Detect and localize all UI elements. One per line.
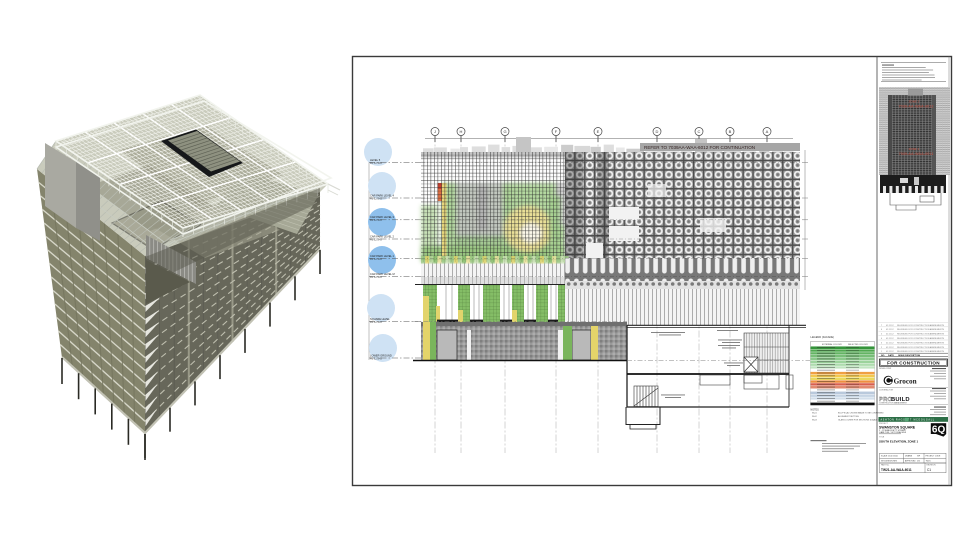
svg-text:RL 12.345: RL 12.345 [370, 237, 382, 241]
svg-text:LEGEND (FACADE): LEGEND (FACADE) [811, 335, 835, 339]
svg-text:Grocon: Grocon [894, 377, 917, 385]
svg-text:D: D [656, 129, 659, 134]
svg-text:DRAWN: DRAWN [905, 454, 913, 457]
svg-text:B: B [729, 129, 732, 134]
svg-text:SWANSTON SQUARE: SWANSTON SQUARE [879, 425, 916, 429]
svg-text:E: E [597, 129, 600, 134]
svg-text:NOTES: NOTES [811, 409, 820, 412]
svg-text:RE-ISSUED FOR CONSTRUCTION AME: RE-ISSUED FOR CONSTRUCTION AMENDMENTS [897, 328, 945, 331]
svg-text:NTS DESIGN REV: NTS DESIGN REV [881, 461, 898, 463]
svg-text:RE-ISSUED FOR CONSTRUCTION AME: RE-ISSUED FOR CONSTRUCTION AMENDMENTS [897, 324, 945, 327]
svg-text:GLASS LOUVRE FOR SECTIONS 10 A: GLASS LOUVRE FOR SECTIONS 10 AALD 3021 [838, 418, 883, 421]
svg-text:TITLE: TITLE [879, 437, 885, 439]
svg-text:DATE: DATE [888, 354, 894, 357]
svg-text:RL 12.345: RL 12.345 [370, 218, 382, 222]
svg-text:02.11.12: 02.11.12 [886, 329, 895, 331]
svg-text:RL 12.345: RL 12.345 [370, 275, 382, 279]
svg-text:REVISION: REVISION [927, 465, 937, 467]
svg-text:ZONE 1: ZONE 1 [909, 147, 920, 151]
svg-text:02.11.12: 02.11.12 [886, 342, 895, 344]
svg-text:RL 12.345: RL 12.345 [370, 257, 382, 261]
svg-text:7039-AA-WAA-6011: 7039-AA-WAA-6011 [899, 152, 934, 156]
svg-text:02.11.12: 02.11.12 [886, 325, 895, 327]
svg-text:CONTRACTOR: CONTRACTOR [879, 389, 894, 392]
svg-text:02.11.12: 02.11.12 [886, 347, 895, 349]
svg-text:J: J [434, 129, 436, 134]
svg-text:RE-ISSUED FOR CONSTRUCTION AME: RE-ISSUED FOR CONSTRUCTION AMENDMENTS [897, 346, 945, 349]
svg-text:RE-ISSUED FOR CONSTRUCTION AME: RE-ISSUED FOR CONSTRUCTION AMENDMENTS [897, 333, 945, 336]
svg-text:TW21: TW21 [926, 461, 931, 463]
svg-text:PROJECT CODE: PROJECT CODE [926, 455, 942, 457]
svg-text:C1: C1 [927, 468, 931, 472]
svg-text:CONSTRUCTION MANAGEMENT: CONSTRUCTION MANAGEMENT [879, 402, 908, 405]
svg-text:PART No.: PART No. [881, 464, 890, 467]
svg-text:EXTERNAL COLOUR: EXTERNAL COLOUR [822, 343, 842, 346]
svg-text:SELECTED COLOUR: SELECTED COLOUR [848, 344, 868, 346]
svg-text:SOUTH ELEVATION, ZONE 1: SOUTH ELEVATION, ZONE 1 [879, 439, 918, 443]
svg-text:02.11.12: 02.11.12 [886, 338, 895, 340]
svg-text:RE-ISSUED FOR CONSTRUCTION AME: RE-ISSUED FOR CONSTRUCTION AMENDMENTS [897, 350, 945, 353]
svg-text:A: A [766, 129, 769, 134]
svg-text:ZONE 2: ZONE 2 [909, 100, 920, 104]
svg-text:RL 12.345: RL 12.345 [370, 356, 382, 360]
svg-text:RL 12.345: RL 12.345 [370, 320, 382, 324]
svg-text:RE-ISSUED FOR CONSTRUCTION AME: RE-ISSUED FOR CONSTRUCTION AMENDMENTS [897, 337, 945, 340]
svg-text:DEVELOPER: DEVELOPER [879, 368, 892, 370]
svg-text:02.11.12: 02.11.12 [886, 334, 895, 336]
svg-text:SCALE 1:100 @ A1: SCALE 1:100 @ A1 [881, 454, 898, 457]
svg-text:H: H [460, 129, 463, 134]
svg-text:7039-AA-WAA-6012: 7039-AA-WAA-6012 [898, 105, 933, 109]
svg-text:RL 12.345: RL 12.345 [370, 196, 382, 200]
svg-text:FOR CONSTRUCTION: FOR CONSTRUCTION [887, 361, 940, 366]
svg-text:6Q: 6Q [932, 424, 946, 435]
svg-text:02.11.12: 02.11.12 [886, 351, 895, 353]
svg-text:RE-ISSUED FOR CONSTRUCTION AME: RE-ISSUED FOR CONSTRUCTION AMENDMENTS [897, 341, 945, 344]
svg-text:APPROVED: APPROVED [905, 460, 916, 463]
svg-text:RL 12.345: RL 12.345 [370, 161, 382, 165]
svg-text:C: C [698, 129, 701, 134]
svg-text:G: G [503, 129, 506, 134]
svg-text:TW21-AA-WAA-6011: TW21-AA-WAA-6011 [881, 468, 912, 472]
svg-text:ELLIPTICAL CROWN IMAGE TO BE C: ELLIPTICAL CROWN IMAGE TO BE CONFIRMED [838, 412, 884, 415]
svg-text:ALIGNMENT SETTING: ALIGNMENT SETTING [838, 415, 859, 418]
svg-text:REFER TO 7039AA-WAA-6012 FOR C: REFER TO 7039AA-WAA-6012 FOR CONTINUATIO… [644, 145, 755, 150]
